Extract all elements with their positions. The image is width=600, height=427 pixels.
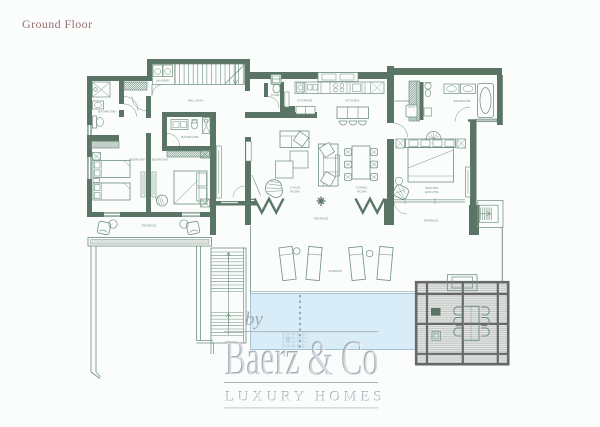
svg-text:DINING: DINING — [357, 186, 368, 190]
svg-text:BATHROOM: BATHROOM — [454, 99, 471, 103]
svg-text:BATHROOM: BATHROOM — [181, 135, 199, 139]
svg-text:BATHROOM: BATHROOM — [98, 109, 116, 113]
svg-text:ROOM: ROOM — [290, 189, 300, 193]
svg-text:TERRACE: TERRACE — [313, 217, 328, 221]
svg-text:LIVING: LIVING — [290, 186, 300, 190]
svg-text:TERRACE: TERRACE — [423, 219, 438, 223]
svg-text:TERRACE: TERRACE — [141, 224, 156, 228]
svg-text:LAUNDRY: LAUNDRY — [156, 79, 170, 83]
svg-text:SUNDECK: SUNDECK — [329, 270, 343, 273]
svg-text:STORAGE: STORAGE — [297, 99, 312, 103]
svg-text:TOILET: TOILET — [271, 93, 282, 97]
svg-text:BEDROOM: BEDROOM — [129, 158, 145, 162]
svg-text:WARDROBE: WARDROBE — [393, 100, 410, 103]
svg-text:KITCHEN: KITCHEN — [345, 99, 359, 103]
svg-text:ENSUITE: ENSUITE — [425, 190, 438, 194]
svg-text:MASTER: MASTER — [426, 186, 439, 190]
svg-text:by: by — [245, 309, 264, 330]
svg-text:HALLWAY: HALLWAY — [188, 99, 205, 103]
svg-text:ROOM: ROOM — [357, 189, 367, 193]
svg-text:BEDROOM: BEDROOM — [152, 158, 168, 162]
svg-text:LUXURY HOMES: LUXURY HOMES — [226, 389, 386, 405]
svg-text:Baerz & Co: Baerz & Co — [226, 332, 380, 387]
